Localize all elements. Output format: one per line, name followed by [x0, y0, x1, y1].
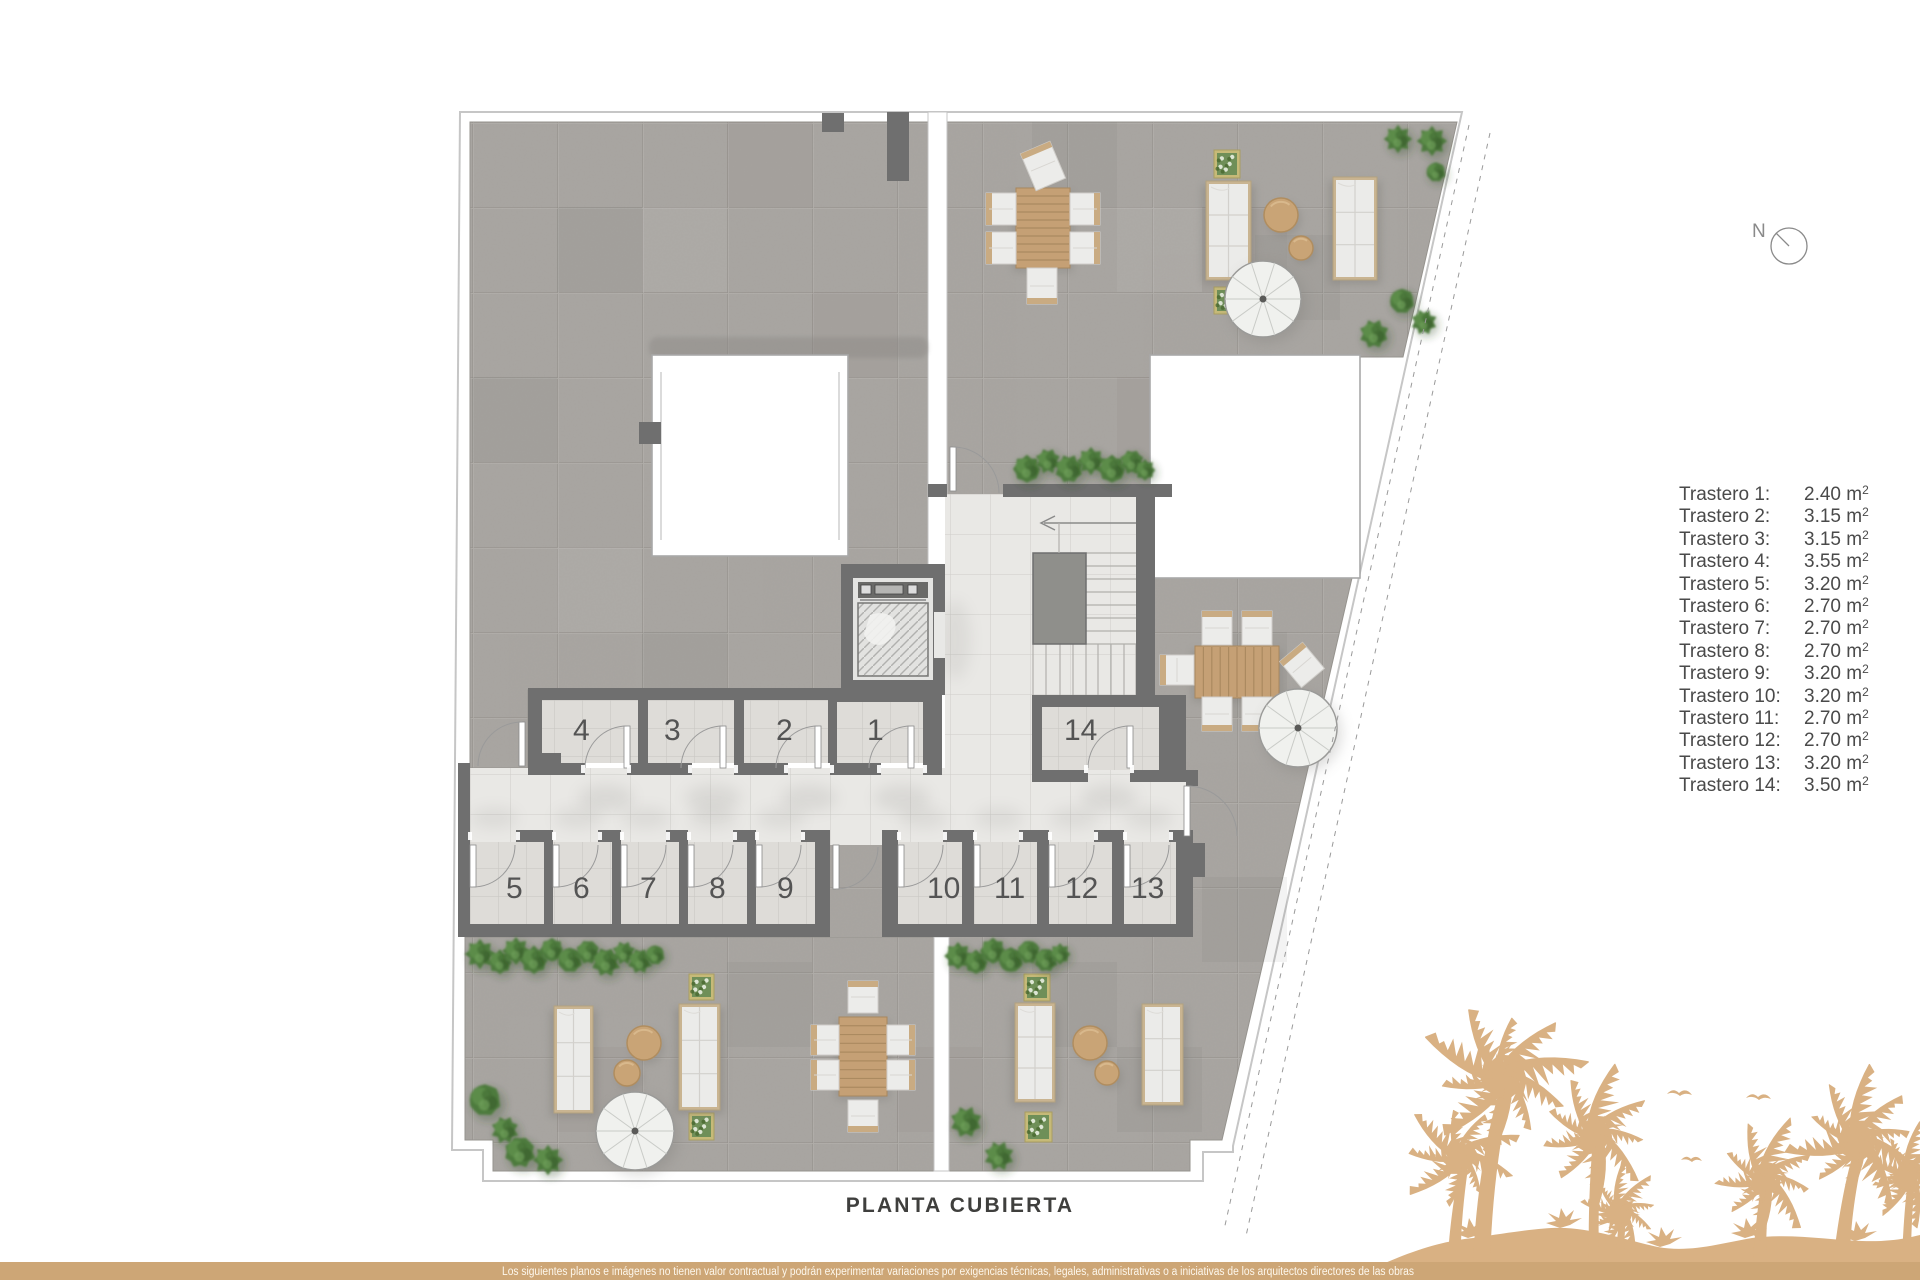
svg-text:2.40 m2: 2.40 m2 — [1804, 483, 1869, 505]
svg-text:9: 9 — [777, 872, 794, 905]
svg-text:14: 14 — [1064, 714, 1097, 747]
svg-text:Trastero 7:: Trastero 7: — [1679, 618, 1770, 639]
svg-text:3.20 m2: 3.20 m2 — [1804, 685, 1869, 707]
svg-text:Trastero 13:: Trastero 13: — [1679, 753, 1781, 774]
svg-text:2: 2 — [776, 714, 793, 747]
svg-text:3.15 m2: 3.15 m2 — [1804, 505, 1869, 527]
svg-text:Trastero 6:: Trastero 6: — [1679, 596, 1770, 617]
svg-text:3.20 m2: 3.20 m2 — [1804, 662, 1869, 684]
svg-text:13: 13 — [1131, 872, 1164, 905]
svg-text:5: 5 — [506, 872, 523, 905]
svg-text:10: 10 — [927, 872, 960, 905]
svg-text:6: 6 — [573, 872, 590, 905]
svg-text:Trastero 10:: Trastero 10: — [1679, 686, 1781, 707]
svg-text:Trastero 5:: Trastero 5: — [1679, 574, 1770, 595]
svg-text:2.70 m2: 2.70 m2 — [1804, 729, 1869, 751]
svg-text:3: 3 — [664, 714, 681, 747]
svg-text:Trastero 11:: Trastero 11: — [1679, 708, 1779, 729]
svg-text:12: 12 — [1065, 872, 1098, 905]
svg-text:2.70 m2: 2.70 m2 — [1804, 707, 1869, 729]
svg-text:Trastero 4:: Trastero 4: — [1679, 551, 1770, 572]
svg-text:Trastero 8:: Trastero 8: — [1679, 641, 1770, 662]
svg-text:3.55 m2: 3.55 m2 — [1804, 550, 1869, 572]
svg-text:Trastero 14:: Trastero 14: — [1679, 775, 1781, 796]
svg-text:Trastero 9:: Trastero 9: — [1679, 663, 1770, 684]
svg-text:3.20 m2: 3.20 m2 — [1804, 752, 1869, 774]
svg-text:2.70 m2: 2.70 m2 — [1804, 640, 1869, 662]
svg-text:11: 11 — [994, 872, 1025, 905]
svg-text:3.50 m2: 3.50 m2 — [1804, 774, 1869, 796]
svg-text:4: 4 — [573, 714, 590, 747]
svg-text:N: N — [1752, 221, 1766, 242]
svg-text:PLANTA CUBIERTA: PLANTA CUBIERTA — [846, 1194, 1075, 1217]
svg-text:2.70 m2: 2.70 m2 — [1804, 617, 1869, 639]
svg-text:3.20 m2: 3.20 m2 — [1804, 573, 1869, 595]
svg-text:8: 8 — [709, 872, 726, 905]
svg-text:3.15 m2: 3.15 m2 — [1804, 528, 1869, 550]
svg-text:2.70 m2: 2.70 m2 — [1804, 595, 1869, 617]
svg-text:Trastero 12:: Trastero 12: — [1679, 730, 1781, 751]
svg-text:1: 1 — [867, 714, 884, 747]
svg-text:7: 7 — [640, 872, 657, 905]
svg-text:Trastero 3:: Trastero 3: — [1679, 529, 1770, 550]
svg-text:Trastero 1:: Trastero 1: — [1679, 484, 1770, 505]
svg-text:Los siguientes planos e imágen: Los siguientes planos e imágenes no tien… — [502, 1266, 1414, 1278]
svg-text:Trastero 2:: Trastero 2: — [1679, 506, 1770, 527]
